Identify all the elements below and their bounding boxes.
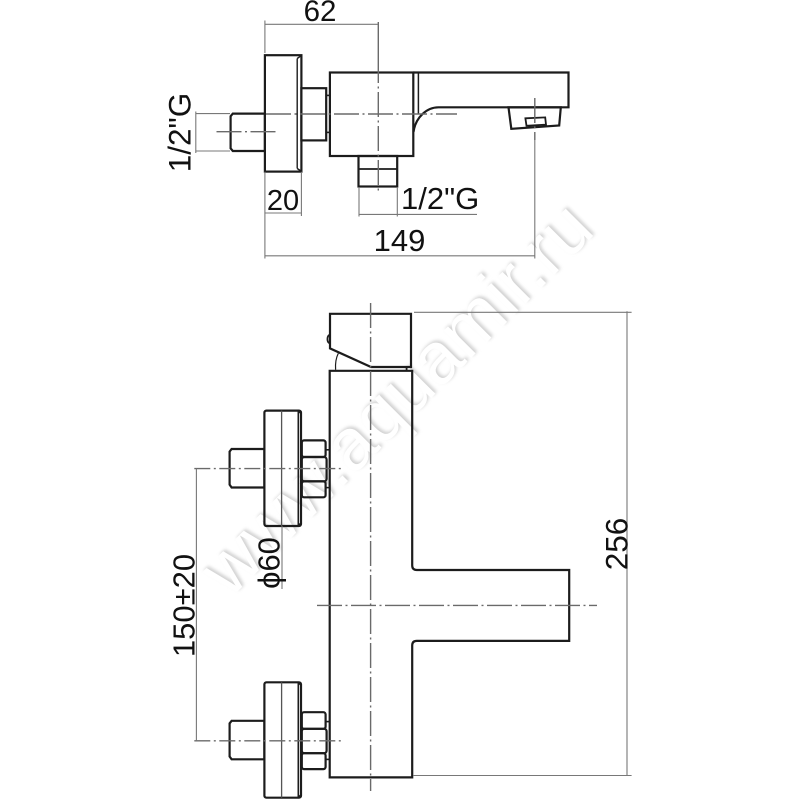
svg-text:149: 149 <box>374 223 426 258</box>
svg-text:1/2"G: 1/2"G <box>162 93 198 172</box>
svg-text:62: 62 <box>304 0 337 28</box>
svg-text:256: 256 <box>599 518 635 571</box>
svg-text:20: 20 <box>267 185 299 217</box>
svg-text:ϕ60: ϕ60 <box>252 537 287 589</box>
svg-text:150±20: 150±20 <box>167 554 202 657</box>
svg-text:1/2"G: 1/2"G <box>401 181 479 216</box>
